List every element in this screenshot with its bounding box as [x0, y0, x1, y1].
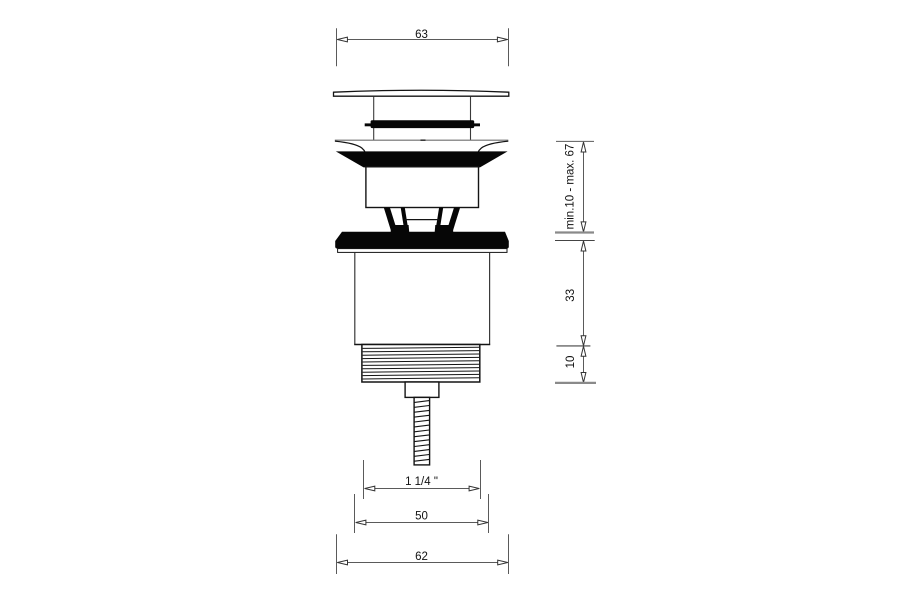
svg-text:min.10 - max. 67: min.10 - max. 67: [565, 144, 577, 230]
svg-text:62: 62: [415, 551, 428, 563]
svg-text:50: 50: [415, 511, 428, 523]
svg-text:63: 63: [415, 29, 428, 41]
svg-text:33: 33: [565, 289, 577, 302]
svg-text:10: 10: [565, 356, 577, 369]
svg-text:1 1/4 ": 1 1/4 ": [405, 476, 438, 488]
